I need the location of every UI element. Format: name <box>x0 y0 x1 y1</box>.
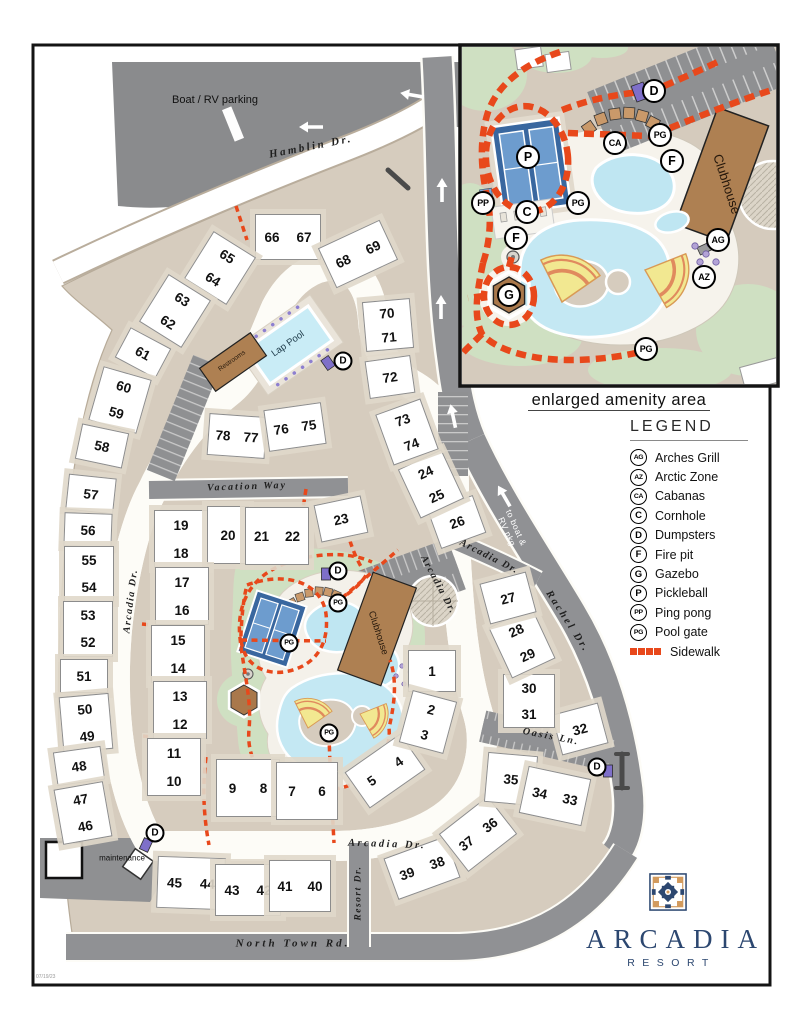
resort-site-map: 6667686965646362616059585756555453525150… <box>0 0 791 1024</box>
map-canvas <box>0 0 791 1024</box>
inset-map <box>434 21 791 392</box>
dumpster-icon <box>604 765 613 777</box>
vacation-way <box>149 487 348 490</box>
lap-pool-parking <box>438 392 468 476</box>
maintenance-building <box>46 842 82 878</box>
dumpster-icon <box>322 568 331 580</box>
